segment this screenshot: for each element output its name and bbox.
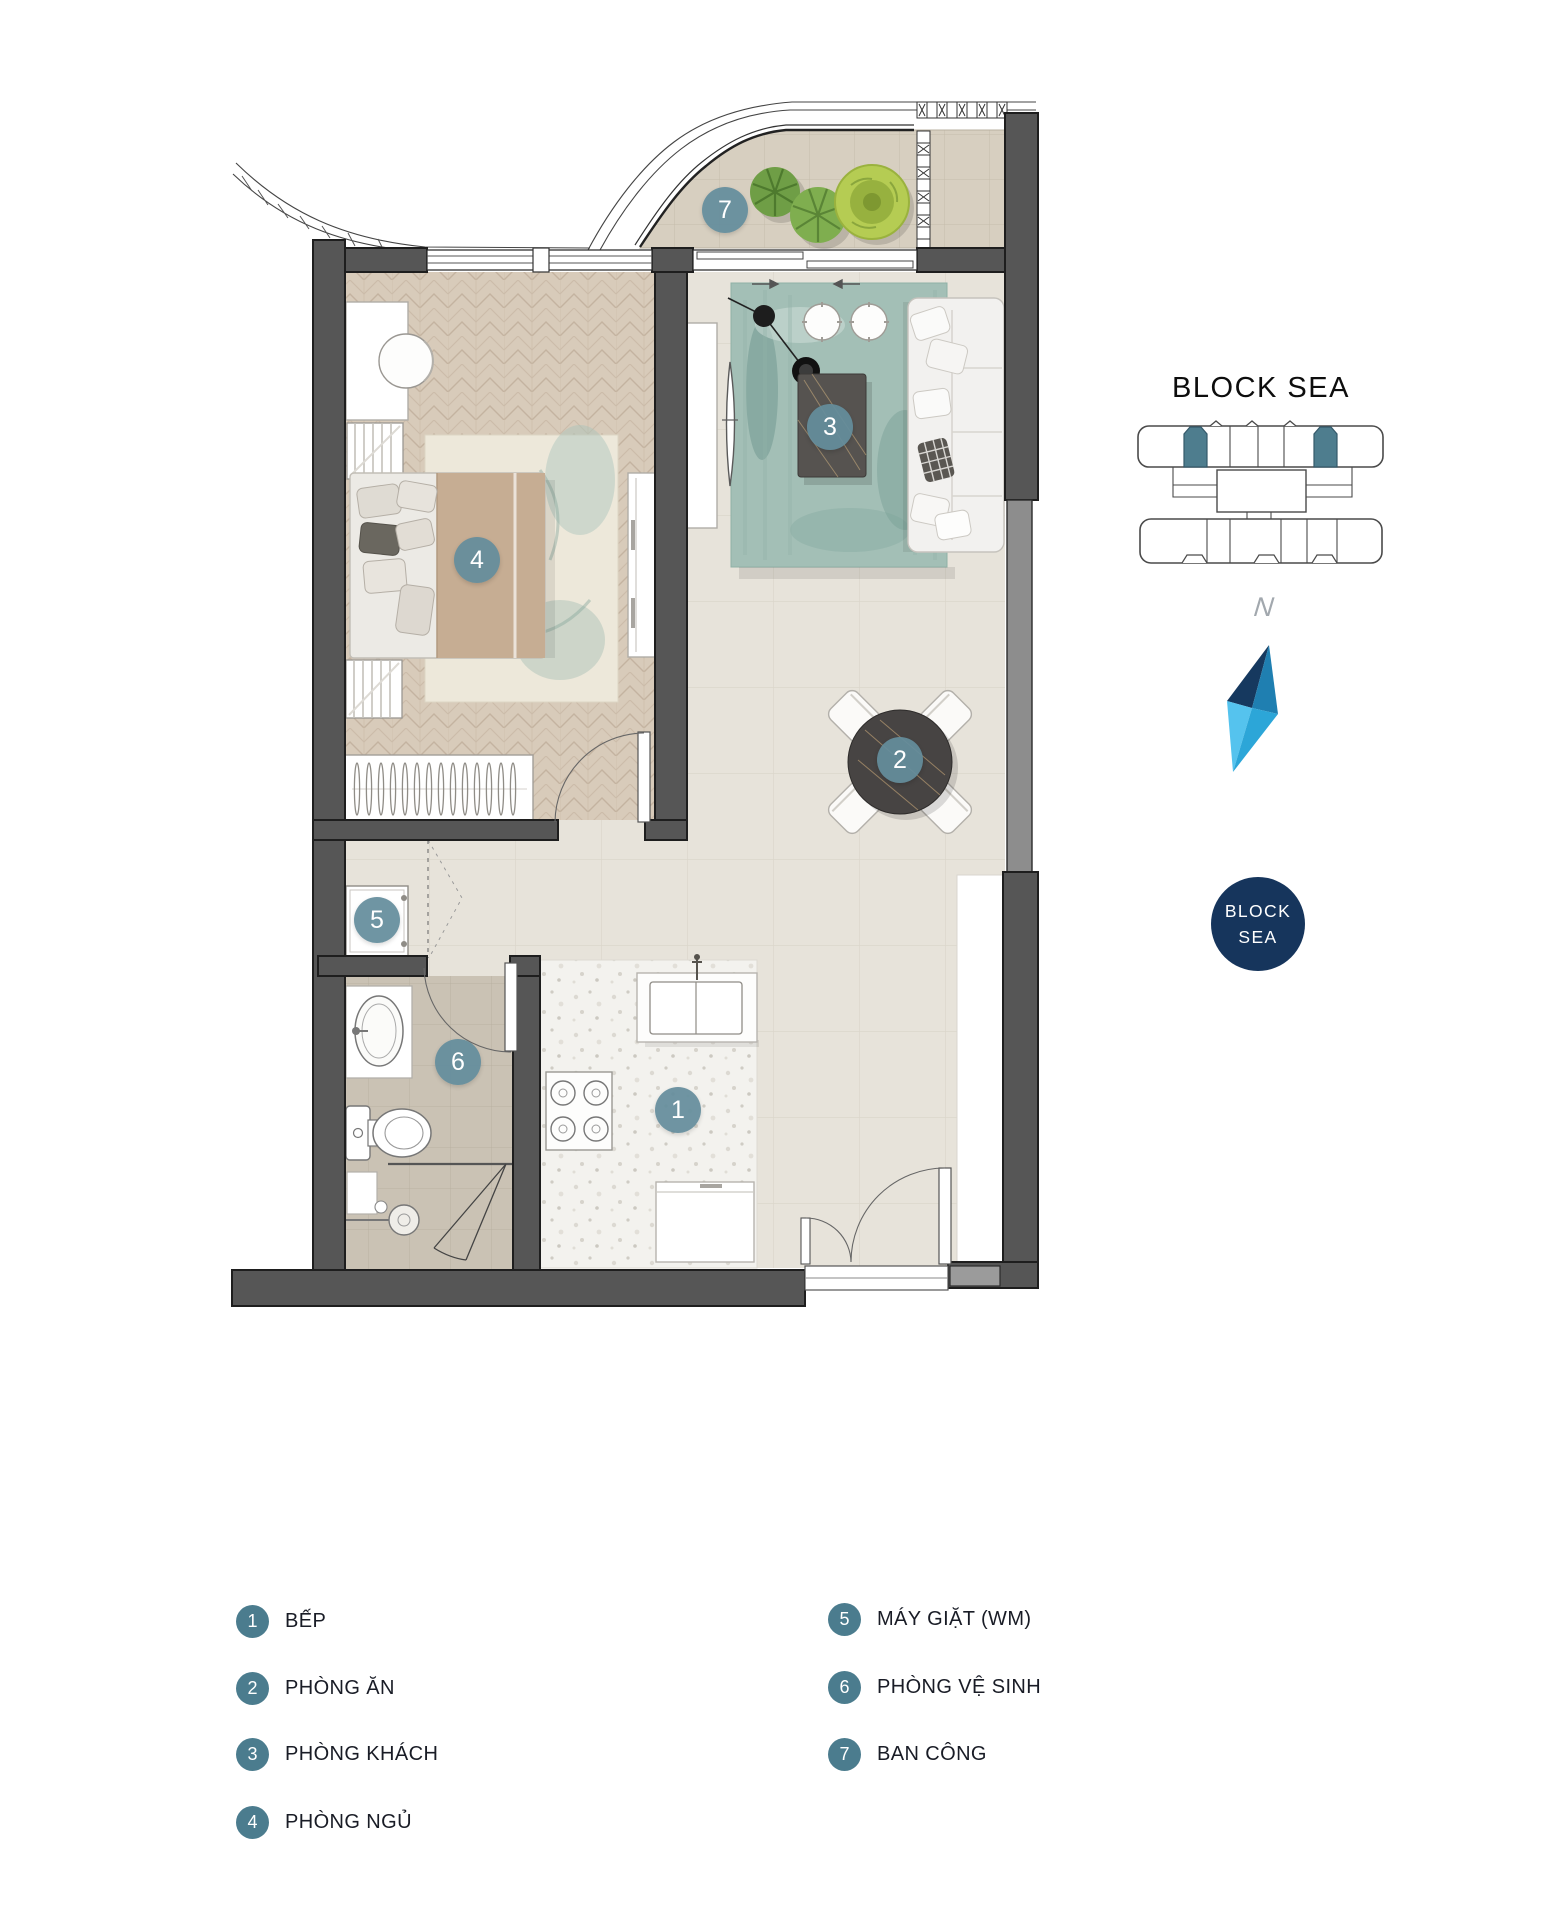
entry-cabinet (957, 875, 1003, 1263)
toilet (346, 1106, 431, 1160)
room-badge-washer: 5 (354, 897, 400, 943)
highlighted-unit (1314, 427, 1337, 467)
legend-label: BAN CÔNG (877, 1743, 987, 1766)
badge-number: 6 (451, 1048, 465, 1077)
floor-plan-page: 1 2 3 4 5 6 7 BLOCK SEA N BLOCK SEA 1 BẾ… (0, 0, 1541, 1911)
badge-number: 3 (823, 413, 837, 442)
legend-label: PHÒNG ĂN (285, 1677, 395, 1700)
room-badge-kitchen: 1 (655, 1087, 701, 1133)
nightstand-bottom (346, 660, 402, 718)
legend-badge: 2 (236, 1672, 269, 1705)
plant-bush (835, 165, 909, 239)
legend-badge: 7 (828, 1738, 861, 1771)
room-badge-dining: 2 (877, 737, 923, 783)
badge-number: 5 (370, 906, 384, 935)
balcony-screen-side (917, 131, 930, 248)
badge-number: 7 (718, 196, 732, 225)
legend-item-washer: 5 MÁY GIẶT (WM) (828, 1603, 1031, 1636)
block-title: BLOCK SEA (1128, 372, 1394, 405)
sofa (903, 298, 1004, 552)
balcony-screen-top (917, 102, 1007, 118)
legend-badge: 4 (236, 1806, 269, 1839)
block-sea-diagram (1138, 421, 1383, 563)
sea-badge-line1: BLOCK (1225, 898, 1291, 924)
compass-north-label: N (1252, 592, 1275, 623)
legend-item-bathroom: 6 PHÒNG VỆ SINH (828, 1671, 1041, 1704)
legend-label: BẾP (285, 1610, 326, 1633)
legend-badge: 5 (828, 1603, 861, 1636)
legend-label: PHÒNG NGỦ (285, 1811, 412, 1834)
legend-item-kitchen: 1 BẾP (236, 1605, 326, 1638)
block-sea-badge: BLOCK SEA (1211, 877, 1305, 971)
compass-icon (1227, 645, 1278, 772)
legend-item-balcony: 7 BAN CÔNG (828, 1738, 987, 1771)
highlighted-unit (1184, 427, 1207, 467)
nightstand-top (347, 423, 403, 479)
sea-badge-line2: SEA (1238, 924, 1277, 950)
legend-badge: 1 (236, 1605, 269, 1638)
room-badge-bathroom: 6 (435, 1039, 481, 1085)
legend-label: MÁY GIẶT (WM) (877, 1608, 1031, 1631)
room-badge-balcony: 7 (702, 187, 748, 233)
balcony (233, 102, 1036, 252)
bed (350, 473, 555, 658)
badge-number: 4 (470, 546, 484, 575)
stove (546, 1072, 612, 1150)
hanger-closet (345, 755, 533, 823)
legend-label: PHÒNG KHÁCH (285, 1743, 438, 1766)
legend-badge: 6 (828, 1671, 861, 1704)
bedroom-window (427, 248, 652, 272)
badge-number: 2 (893, 746, 907, 775)
room-badge-bedroom: 4 (454, 537, 500, 583)
room-badge-living: 3 (807, 404, 853, 450)
legend-badge: 3 (236, 1738, 269, 1771)
legend-item-dining: 2 PHÒNG ĂN (236, 1672, 395, 1705)
fridge (656, 1182, 754, 1262)
floor-plan-drawing (0, 0, 1541, 1911)
legend-item-living: 3 PHÒNG KHÁCH (236, 1738, 438, 1771)
bathroom-vanity (346, 986, 412, 1078)
legend-item-bedroom: 4 PHÒNG NGỦ (236, 1806, 412, 1839)
legend-label: PHÒNG VỆ SINH (877, 1676, 1041, 1699)
badge-number: 1 (671, 1096, 685, 1125)
